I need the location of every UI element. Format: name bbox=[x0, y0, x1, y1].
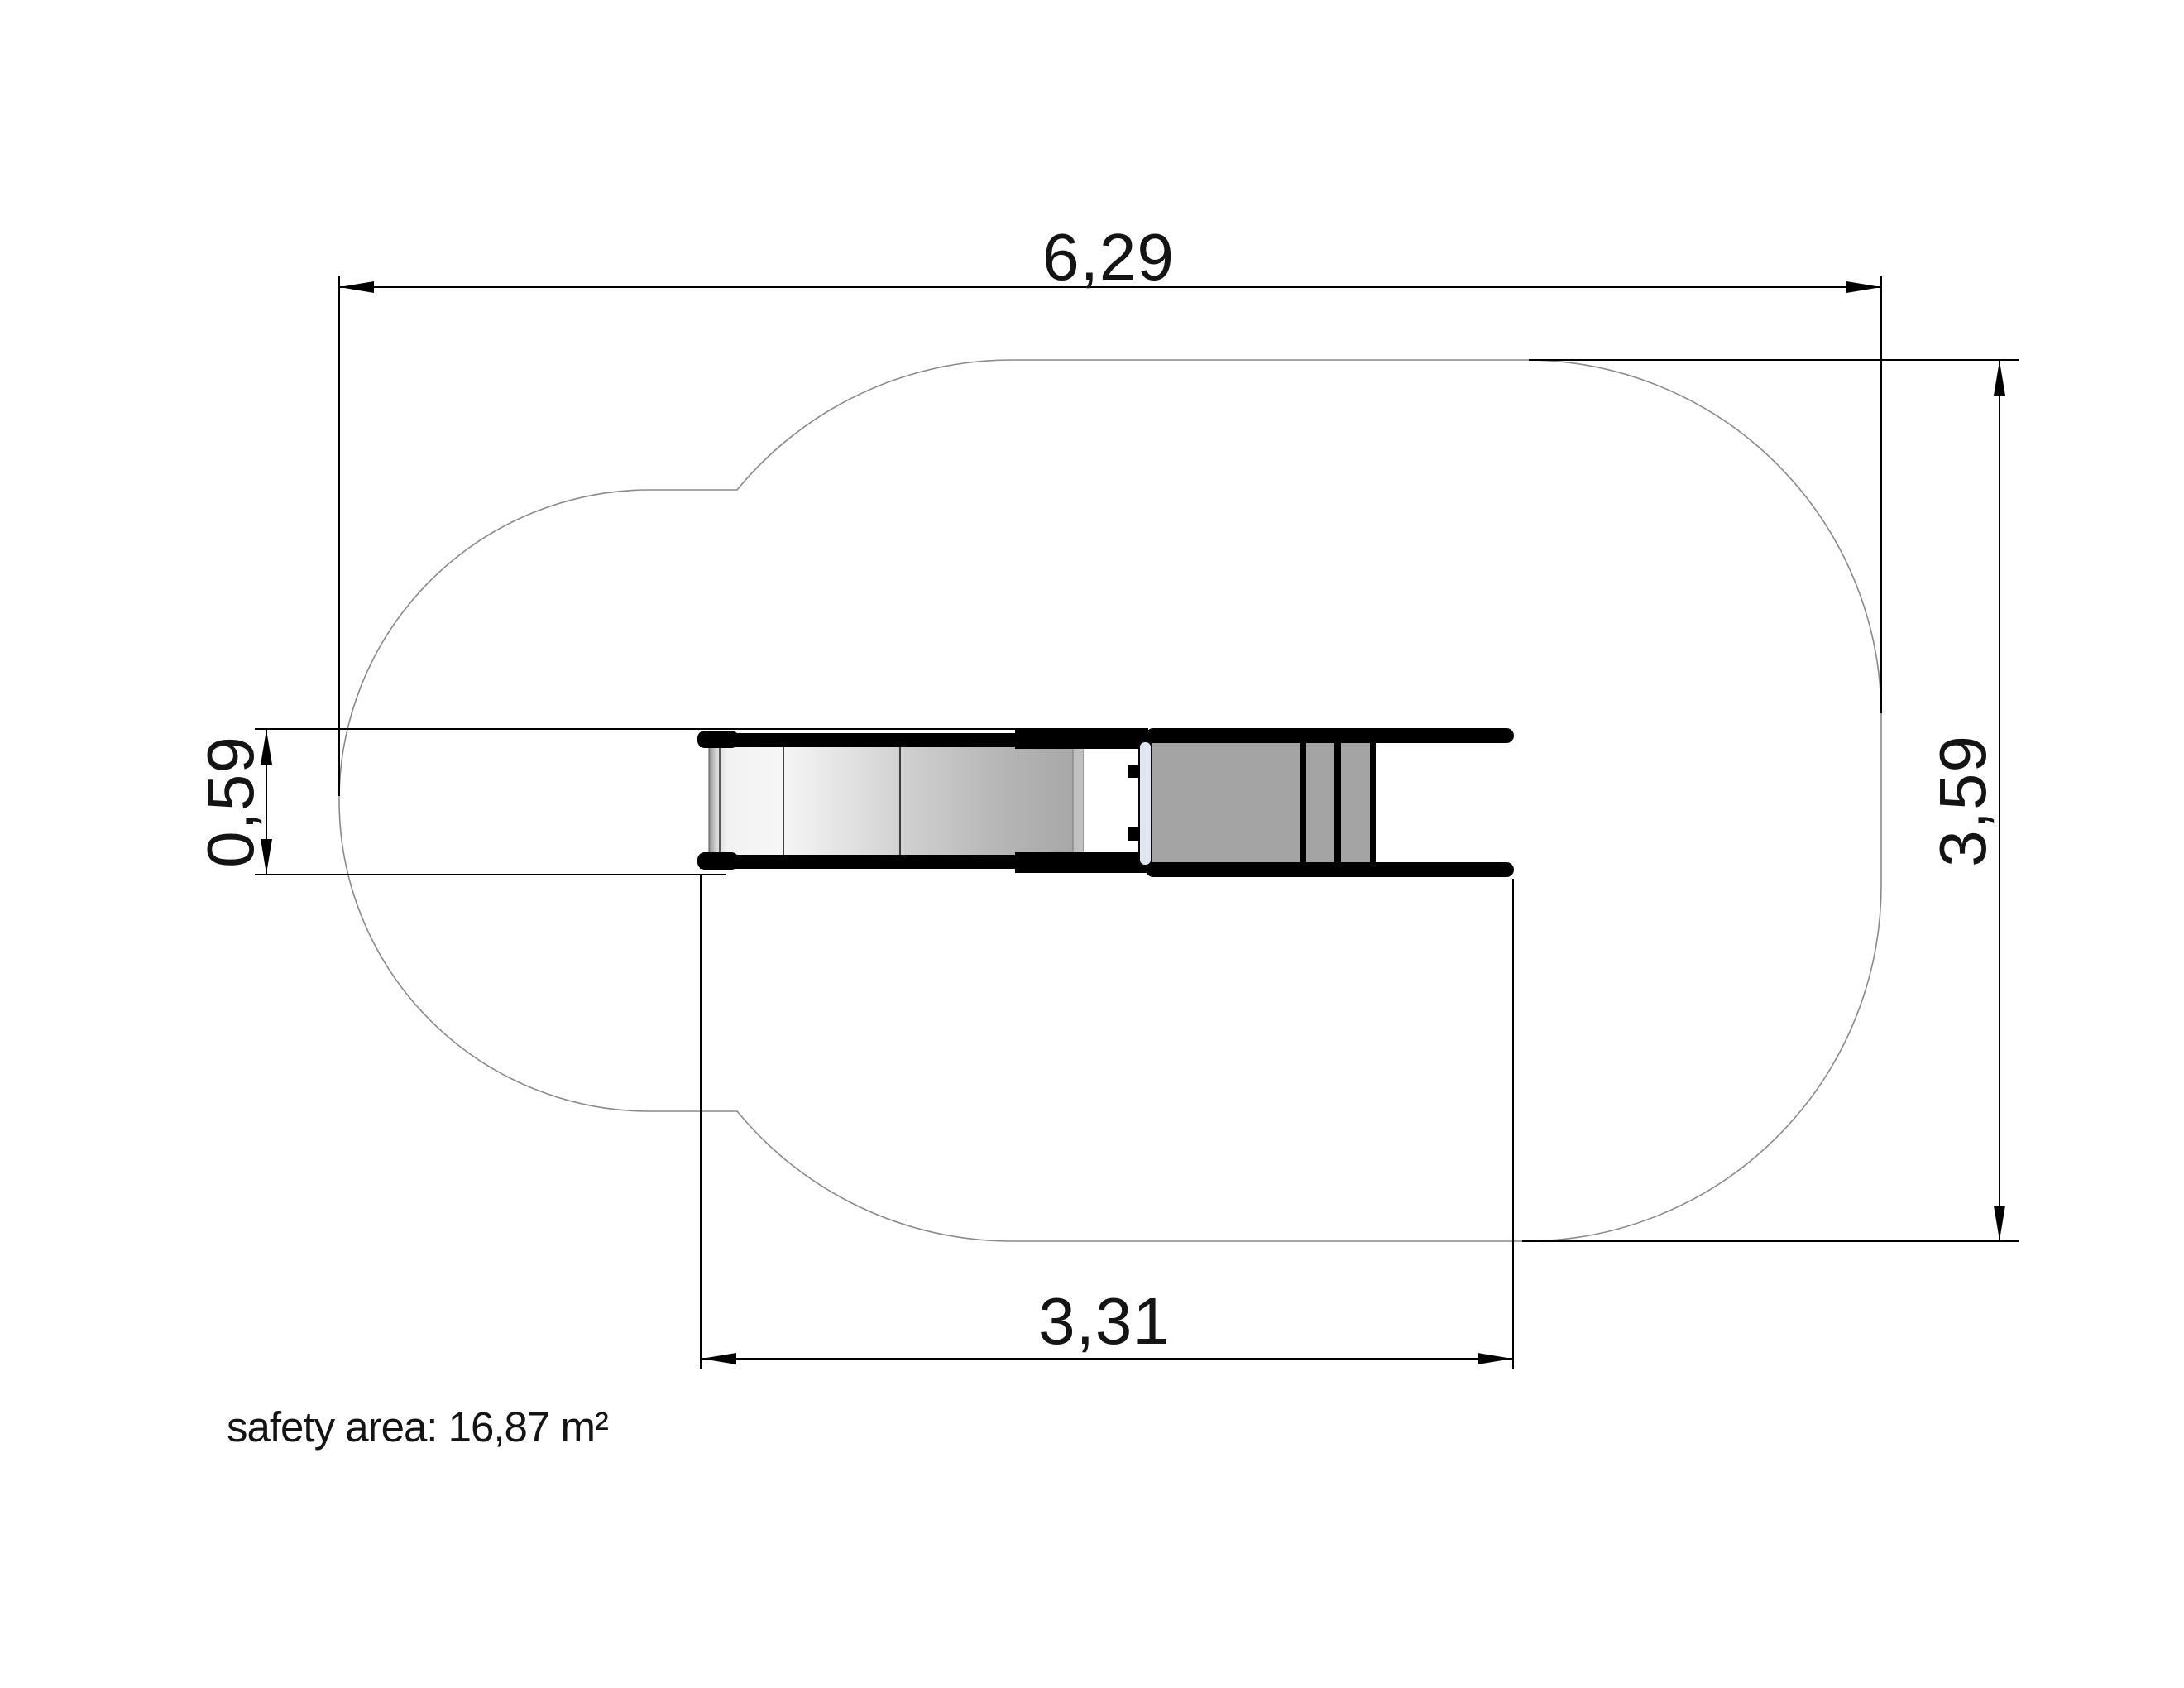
junction-hinge-top bbox=[1128, 765, 1140, 778]
dim-total-height-label: 3,59 bbox=[1926, 735, 2000, 867]
arrow-right bbox=[1846, 281, 1881, 293]
arrow-right bbox=[1478, 1353, 1512, 1364]
dimension-total-width: 6,29 bbox=[339, 220, 1881, 796]
slide-bed bbox=[709, 746, 1073, 856]
ladder-rung-1 bbox=[1306, 743, 1334, 862]
handrail-top bbox=[1146, 728, 1514, 743]
arrow-left bbox=[702, 1353, 736, 1364]
slide-gray-strip bbox=[1073, 746, 1084, 856]
dim-equipment-width-label: 3,31 bbox=[1038, 1284, 1171, 1358]
equipment-top-view bbox=[697, 728, 1514, 877]
platform-deck bbox=[1152, 743, 1300, 862]
arrow-left bbox=[339, 281, 374, 293]
dimension-equipment-width: 3,31 bbox=[701, 875, 1513, 1369]
drawing-svg: 6,29 3,59 0,59 3,31 bbox=[0, 0, 2184, 1688]
ladder-stringer-1 bbox=[1300, 743, 1306, 862]
slide-end-cap-bottom bbox=[697, 852, 739, 870]
dimension-total-height: 3,59 bbox=[1522, 360, 2019, 1241]
arrow-top bbox=[1994, 361, 2005, 396]
ladder-stringer-3 bbox=[1370, 743, 1376, 862]
ladder-rung-2 bbox=[1341, 743, 1370, 862]
dim-equipment-height-label: 0,59 bbox=[194, 736, 267, 868]
dim-total-width-label: 6,29 bbox=[1042, 220, 1175, 294]
technical-drawing-canvas: 6,29 3,59 0,59 3,31 bbox=[0, 0, 2184, 1688]
slide-end-cap-top bbox=[697, 731, 739, 748]
safety-area-label: safety area: 16,87 m² bbox=[227, 1403, 609, 1451]
junction-hinge-bottom bbox=[1128, 827, 1140, 841]
ladder-stringer-2 bbox=[1334, 743, 1341, 862]
handrail-bottom bbox=[1146, 862, 1514, 877]
arrow-bottom bbox=[1994, 1206, 2005, 1240]
junction-bar bbox=[1139, 741, 1152, 866]
